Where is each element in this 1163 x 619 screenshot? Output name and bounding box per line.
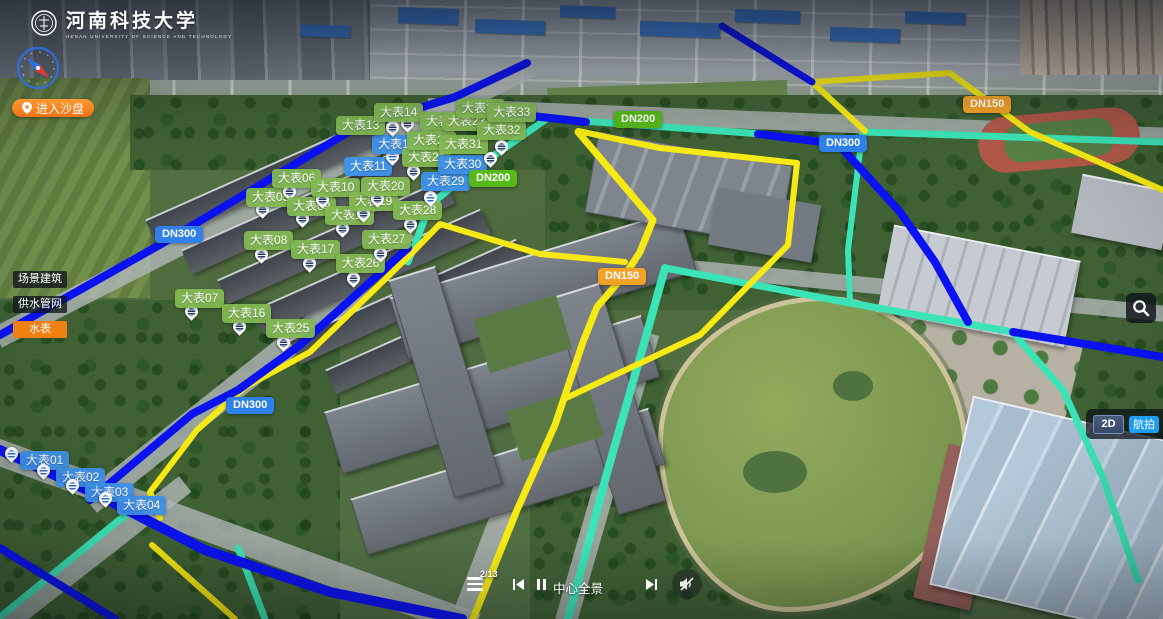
pipe-diameter-badge-dn300[interactable]: DN300	[155, 226, 203, 243]
pipe-diameter-badge-dn150[interactable]: DN150	[598, 268, 646, 285]
pipe-diameter-badge-dn300[interactable]: DN300	[819, 135, 867, 152]
mute-button[interactable]	[672, 569, 702, 599]
university-logo: 河南科技大学 HENAN UNIVERSITY OF SCIENCE AND T…	[30, 6, 232, 39]
layer-legend: 场景建筑供水管网水表	[13, 271, 67, 338]
compass-needle-icon	[14, 44, 62, 92]
water-meter-marker[interactable]: 大表14	[374, 103, 423, 122]
playlist-icon	[467, 583, 483, 586]
legend-item-water-meters[interactable]: 水表	[13, 321, 67, 338]
pipe-diameter-badge-dn200[interactable]: DN200	[614, 111, 662, 128]
water-meter-marker[interactable]: 大表27	[362, 230, 411, 249]
search-icon	[1132, 299, 1150, 317]
water-meter-marker[interactable]: 大表28	[393, 201, 442, 220]
previous-scene-button[interactable]	[512, 578, 525, 596]
water-meter-marker[interactable]: 大表16	[222, 304, 271, 323]
enter-sandbox-button[interactable]: 进入沙盘	[12, 99, 94, 117]
map-annotations: 大表01大表02大表03大表04大表05大表06大表07大表08大表09大表10…	[0, 0, 1163, 619]
water-meter-marker[interactable]: 大表17	[291, 240, 340, 259]
water-meter-marker[interactable]: 大表29	[421, 172, 470, 191]
location-pin-icon	[22, 102, 32, 114]
water-meter-marker[interactable]: 大表20	[361, 177, 410, 196]
enter-sandbox-label: 进入沙盘	[36, 100, 84, 117]
pause-icon	[536, 578, 547, 591]
mode-2d-button[interactable]: 2D	[1093, 415, 1124, 434]
water-meter-marker[interactable]: 大表07	[175, 289, 224, 308]
water-meter-pin-icon[interactable]	[2, 444, 20, 462]
logo-title: 河南科技大学	[66, 6, 232, 33]
pipe-diameter-badge-dn150[interactable]: DN150	[963, 96, 1011, 113]
scene-counter: 2/13	[480, 569, 498, 579]
digital-twin-campus-app: 大表01大表02大表03大表04大表05大表06大表07大表08大表09大表10…	[0, 0, 1163, 619]
scene-title: 中心全景	[553, 578, 603, 597]
search-button[interactable]	[1126, 293, 1156, 323]
water-meter-marker[interactable]: 大表33	[487, 103, 536, 122]
pipe-diameter-badge-dn300[interactable]: DN300	[226, 397, 274, 414]
skip-previous-icon	[512, 578, 525, 591]
water-meter-marker[interactable]: 大表11	[344, 157, 392, 176]
legend-item-water-pipes[interactable]: 供水管网	[13, 296, 67, 313]
skip-next-icon	[645, 578, 658, 591]
water-meter-marker[interactable]: 大表04	[117, 496, 166, 515]
next-scene-button[interactable]	[645, 578, 658, 596]
water-meter-marker[interactable]: 大表25	[266, 319, 315, 338]
view-mode-panel: 2D 航拍	[1086, 409, 1163, 439]
water-meter-marker[interactable]: 大表08	[244, 231, 293, 250]
muted-speaker-icon	[679, 576, 695, 592]
water-meter-marker[interactable]: 大表32	[477, 121, 526, 140]
playlist-icon	[467, 588, 483, 591]
university-emblem-icon	[30, 9, 58, 37]
pipe-diameter-badge-dn200[interactable]: DN200	[469, 170, 517, 187]
scene-playlist-button[interactable]	[467, 577, 483, 594]
compass-control[interactable]	[14, 44, 62, 92]
mode-aerial-button[interactable]: 航拍	[1129, 416, 1159, 433]
legend-item-scene-buildings[interactable]: 场景建筑	[13, 271, 67, 288]
logo-subtitle: HENAN UNIVERSITY OF SCIENCE AND TECHNOLO…	[66, 34, 232, 39]
pause-button[interactable]	[536, 578, 547, 596]
